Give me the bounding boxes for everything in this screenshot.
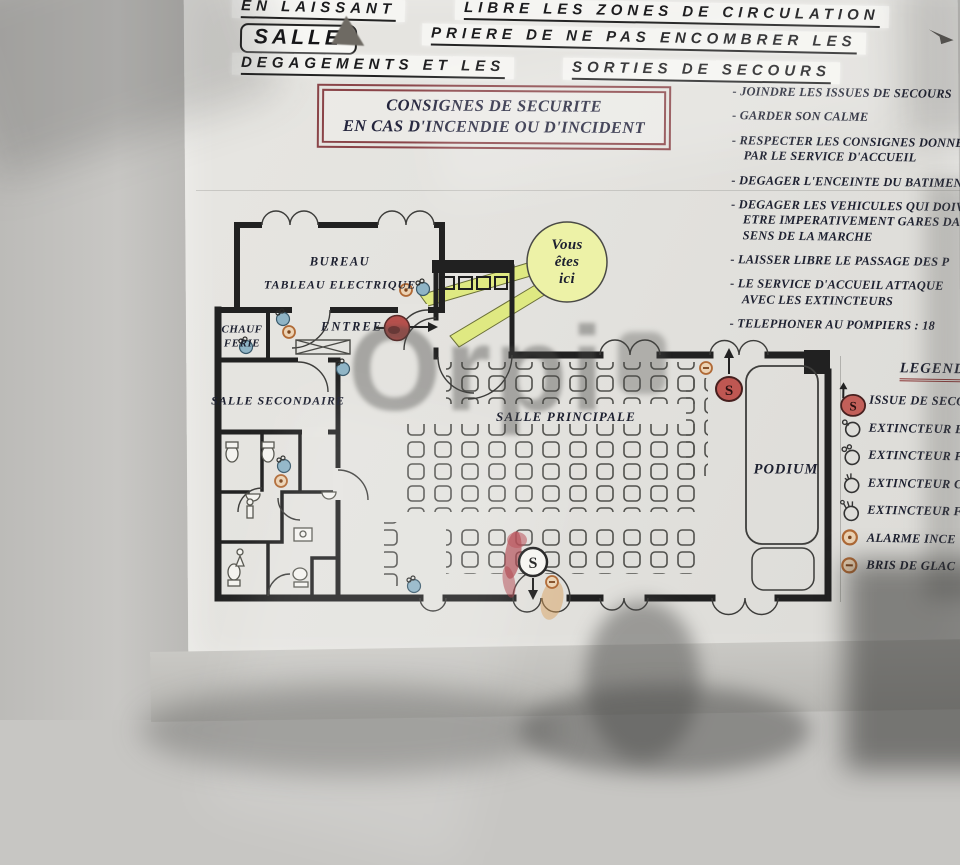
- room-label-chaufferie: CHAUF FERIE: [221, 323, 262, 351]
- svg-text:S: S: [529, 555, 538, 572]
- exit-s-podium-icon: S: [716, 348, 742, 401]
- extinguisher-water-icon: [835, 415, 869, 440]
- extinguisher-powder-icon: [834, 443, 868, 468]
- agency-watermark-glyph: [618, 332, 666, 394]
- svg-text:S: S: [849, 398, 856, 413]
- agency-watermark: Orpi: [348, 300, 607, 438]
- legend-item: EXTINCTEUR PO: [834, 441, 960, 472]
- legend-title: LEGENDE: [900, 360, 960, 382]
- instruction-item: - GARDER SON CALME: [732, 109, 960, 128]
- instruction-list: - JOINDRE LES ISSUES DE SECOURS - GARDER…: [729, 84, 960, 344]
- room-label-bureau: BUREAU: [310, 255, 370, 270]
- break-glass-icon: [832, 553, 866, 578]
- legend-item: EXTINCTEUR F: [833, 496, 960, 527]
- instruction-item: - JOINDRE LES ISSUES DE SECOURS: [732, 84, 960, 103]
- you-are-here-label: Vous êtes ici: [551, 237, 582, 287]
- extinguisher-co2-icon: [834, 470, 868, 495]
- legend-item: ALARME INCE: [833, 524, 960, 555]
- legend-item: EXTINCTEUR EA: [834, 414, 960, 445]
- legend-item: S ISSUE DE SECOU: [835, 386, 960, 417]
- legend-label: ISSUE DE SECOU: [869, 393, 960, 410]
- legend-label: EXTINCTEUR PO: [868, 448, 960, 465]
- instruction-item: - LE SERVICE D'ACCUEIL ATTAQUE AVEC LES …: [730, 277, 960, 311]
- instruction-item: - LAISSER LIBRE LE PASSAGE DES P: [730, 252, 960, 271]
- extinguisher-foam-icon: [833, 498, 867, 523]
- fire-alarm-icon: [833, 525, 867, 550]
- instruction-item: - DEGAGER LES VEHICULES QUI DOIV ETRE IM…: [731, 197, 960, 247]
- legend-panel: LEGENDE S ISSUE DE SECOU EXTINCTEUR EA E…: [832, 358, 960, 582]
- legend-label: BRIS DE GLAC: [866, 558, 955, 575]
- room-label-tableau-electrique: TABLEAU ELECTRIQUE: [264, 278, 416, 293]
- legend-label: EXTINCTEUR EA: [869, 420, 960, 437]
- photo-of-safety-plan: { "header": { "line1_left": "EN LAISSANT…: [0, 0, 960, 720]
- legend-label: EXTINCTEUR F: [867, 503, 960, 520]
- room-label-podium: PODIUM: [754, 462, 819, 479]
- instruction-item: - DEGAGER L'ENCEINTE DU BATIMENT: [731, 173, 960, 192]
- legend-label: EXTINCTEUR C: [868, 475, 960, 492]
- legend-label: ALARME INCE: [867, 530, 956, 547]
- instruction-item: - RESPECTER LES CONSIGNES DONNEE PAR LE …: [732, 133, 960, 167]
- legend-item: EXTINCTEUR C: [834, 469, 960, 500]
- legend-item: BRIS DE GLAC: [832, 551, 960, 582]
- instruction-item: - TELEPHONER AU POMPIERS : 18: [730, 316, 960, 335]
- emergency-exit-icon: S: [835, 382, 870, 419]
- room-label-salle-secondaire: SALLE SECONDAIRE: [211, 394, 345, 409]
- svg-text:S: S: [725, 383, 733, 399]
